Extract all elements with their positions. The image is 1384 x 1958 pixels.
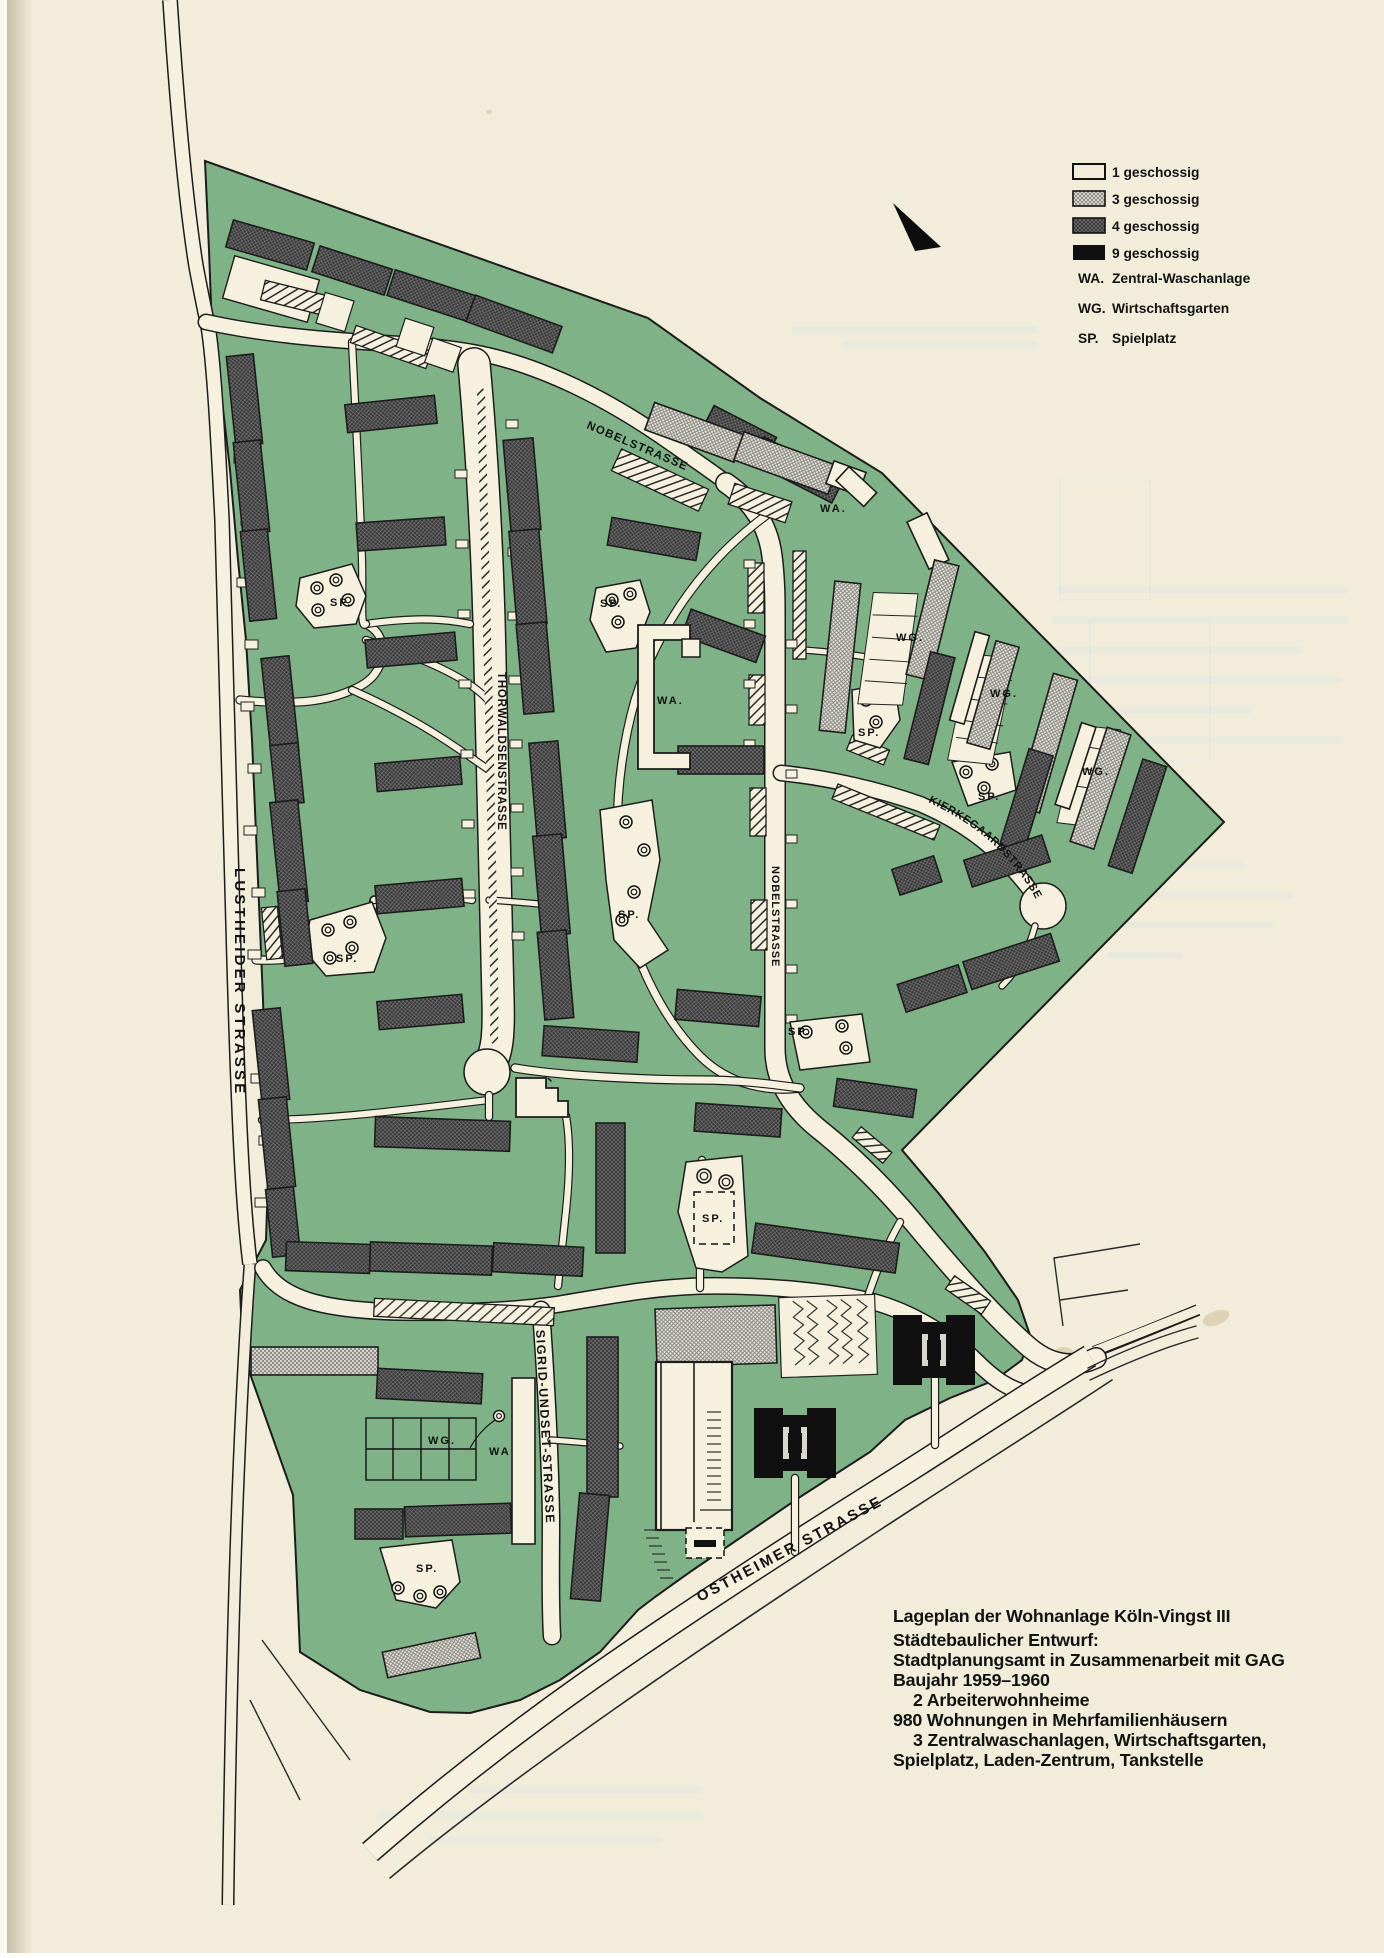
svg-text:SP.: SP. <box>1078 331 1098 346</box>
svg-text:Lageplan der Wohnanlage Köln-V: Lageplan der Wohnanlage Köln-Vingst III <box>893 1606 1230 1626</box>
svg-text:WA.: WA. <box>657 695 684 707</box>
svg-text:SP.: SP. <box>600 598 622 610</box>
svg-text:LUSTHEIDER STRASSE: LUSTHEIDER STRASSE <box>231 868 248 1096</box>
svg-text:SP.: SP. <box>416 1563 438 1575</box>
svg-text:WG.: WG. <box>990 688 1018 700</box>
svg-text:WG.: WG. <box>896 632 924 644</box>
svg-text:3 Zentralwaschanlagen, Wirtsch: 3 Zentralwaschanlagen, Wirtschaftsgarten… <box>913 1730 1266 1750</box>
svg-text:NOBELSTRASSE: NOBELSTRASSE <box>769 866 781 967</box>
svg-text:WG.: WG. <box>1082 766 1110 778</box>
svg-text:WA.: WA. <box>820 503 847 515</box>
svg-text:SP.: SP. <box>618 909 640 921</box>
svg-text:SP.: SP. <box>330 597 352 609</box>
svg-text:Baujahr 1959–1960: Baujahr 1959–1960 <box>893 1670 1050 1690</box>
svg-text:SP.: SP. <box>858 727 880 739</box>
svg-text:Wirtschaftsgarten: Wirtschaftsgarten <box>1112 301 1229 316</box>
svg-text:Zentral-Waschanlage: Zentral-Waschanlage <box>1112 271 1251 286</box>
svg-text:SP.: SP. <box>978 791 1000 803</box>
svg-text:980 Wohnungen in Mehrfamilienh: 980 Wohnungen in Mehrfamilienhäusern <box>893 1710 1227 1730</box>
svg-text:1 geschossig: 1 geschossig <box>1112 165 1199 180</box>
svg-text:SP.: SP. <box>788 1026 810 1038</box>
svg-text:WG.: WG. <box>1078 301 1106 316</box>
svg-text:Spielplatz, Laden-Zentrum, Tan: Spielplatz, Laden-Zentrum, Tankstelle <box>893 1750 1204 1770</box>
svg-text:Stadtplanungsamt in Zusammenar: Stadtplanungsamt in Zusammenarbeit mit G… <box>893 1650 1285 1670</box>
svg-text:WG.: WG. <box>428 1435 456 1447</box>
svg-text:4 geschossig: 4 geschossig <box>1112 219 1199 234</box>
svg-text:3 geschossig: 3 geschossig <box>1112 192 1199 207</box>
svg-text:2 Arbeiterwohnheime: 2 Arbeiterwohnheime <box>913 1690 1090 1710</box>
svg-text:Städtebaulicher Entwurf:: Städtebaulicher Entwurf: <box>893 1630 1099 1650</box>
svg-text:Spielplatz: Spielplatz <box>1112 331 1176 346</box>
svg-text:SP.: SP. <box>702 1213 724 1225</box>
svg-text:9 geschossig: 9 geschossig <box>1112 246 1199 261</box>
svg-text:WA.: WA. <box>1078 271 1104 286</box>
svg-text:THORWALDSENSTRASSE: THORWALDSENSTRASSE <box>495 672 507 831</box>
svg-text:SP.: SP. <box>336 953 358 965</box>
